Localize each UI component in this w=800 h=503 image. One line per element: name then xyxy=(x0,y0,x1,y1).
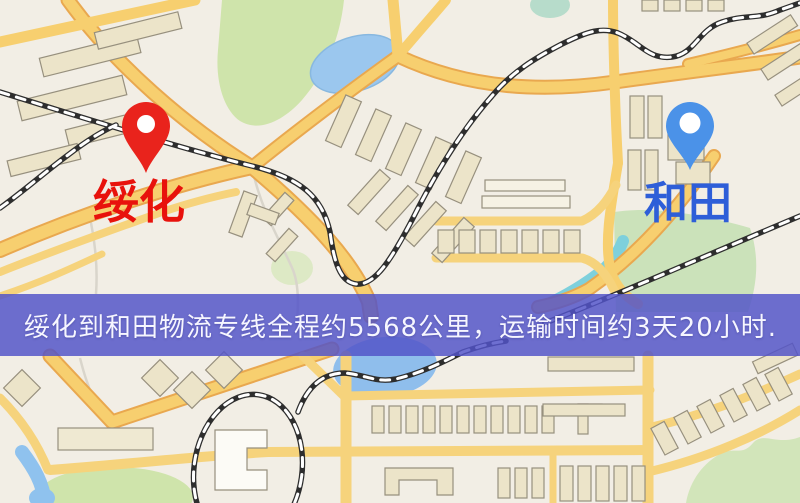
map-canvas xyxy=(0,0,800,503)
route-banner: 绥化到和田物流专线全程约5568公里，运输时间约3天20小时. xyxy=(0,294,800,356)
logistics-map-image: 绥化到和田物流专线全程约5568公里，运输时间约3天20小时. 绥化 和田 xyxy=(0,0,800,503)
route-banner-text: 绥化到和田物流专线全程约5568公里，运输时间约3天20小时. xyxy=(24,307,777,344)
